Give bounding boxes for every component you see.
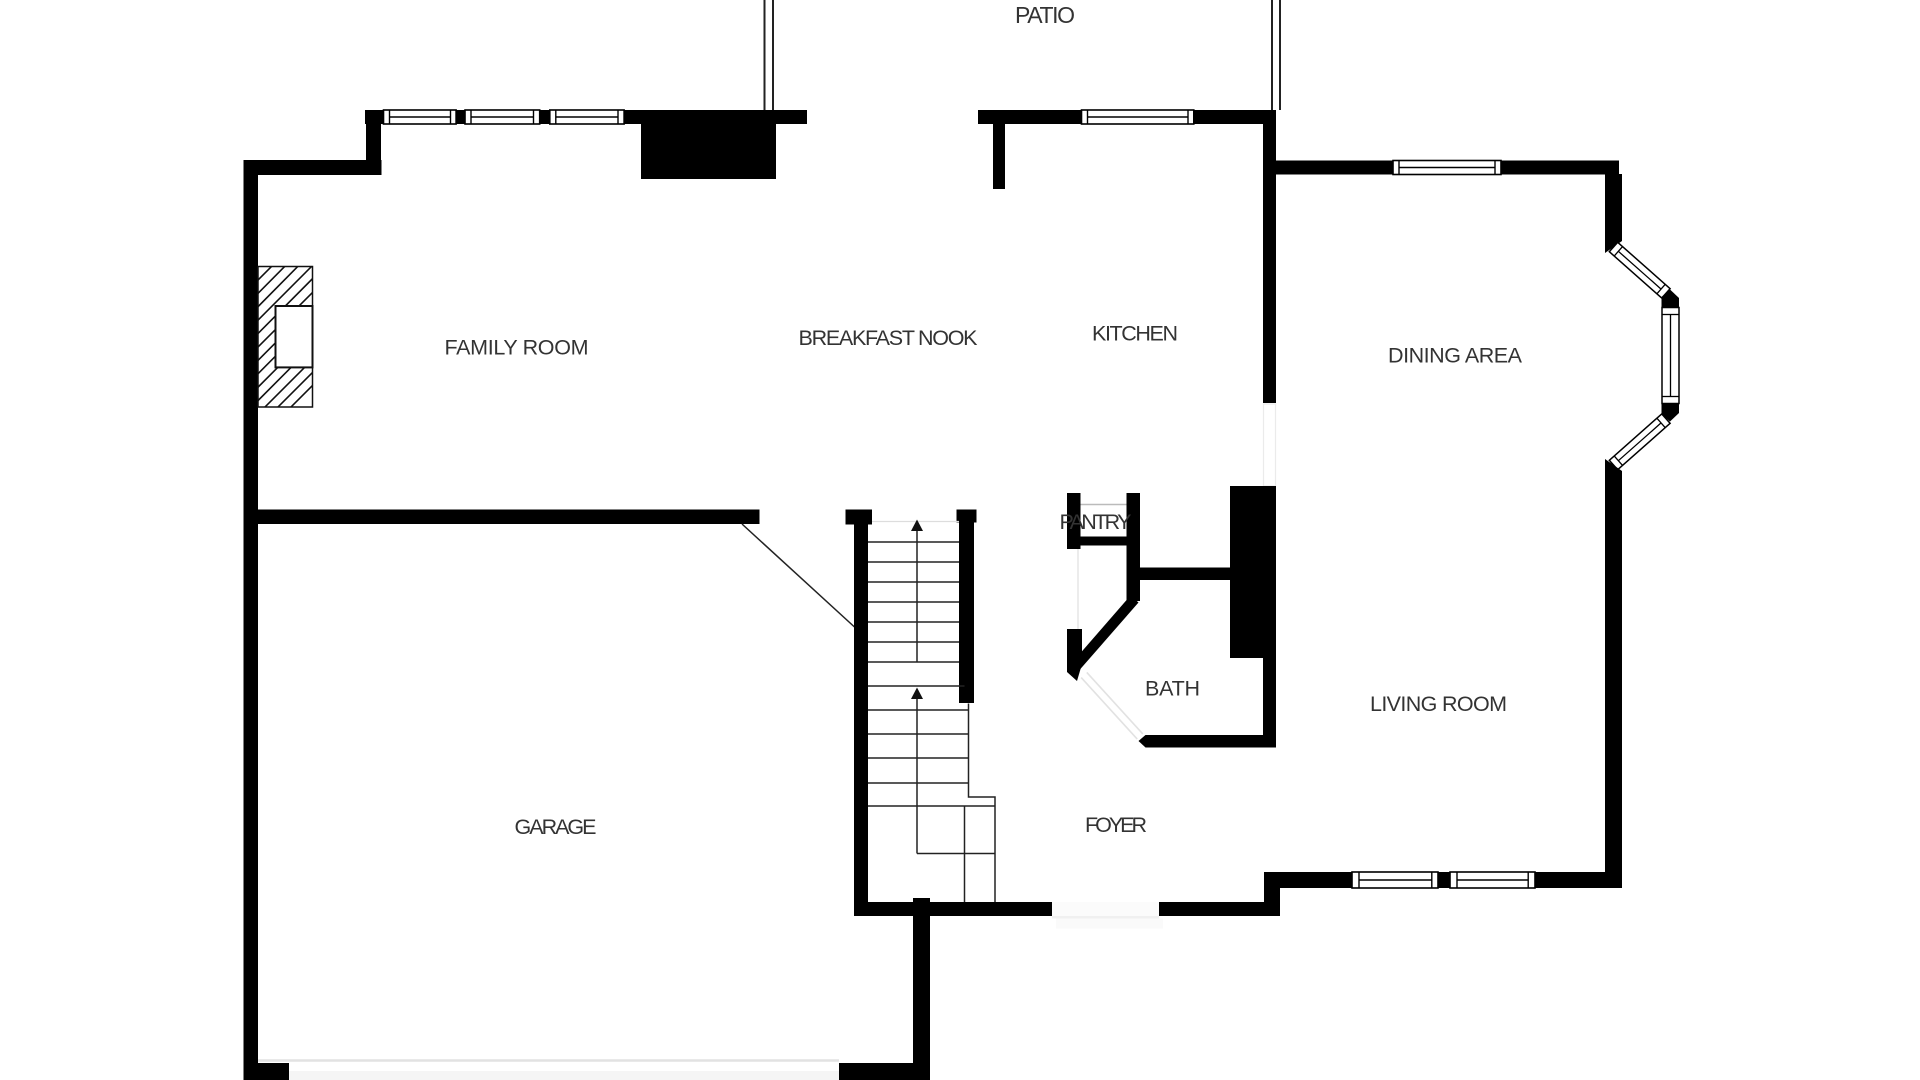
svg-text:BATH: BATH	[1145, 677, 1200, 701]
svg-text:DINING AREA: DINING AREA	[1388, 344, 1523, 368]
svg-text:GARAGE: GARAGE	[515, 815, 597, 839]
svg-text:FOYER: FOYER	[1085, 813, 1147, 837]
svg-text:FAMILY ROOM: FAMILY ROOM	[445, 336, 589, 360]
svg-text:PATIO: PATIO	[1015, 2, 1075, 28]
svg-text:PANTRY: PANTRY	[1060, 510, 1132, 534]
svg-text:BREAKFAST NOOK: BREAKFAST NOOK	[799, 326, 979, 350]
svg-text:LIVING ROOM: LIVING ROOM	[1370, 692, 1507, 716]
svg-text:KITCHEN: KITCHEN	[1092, 322, 1178, 346]
